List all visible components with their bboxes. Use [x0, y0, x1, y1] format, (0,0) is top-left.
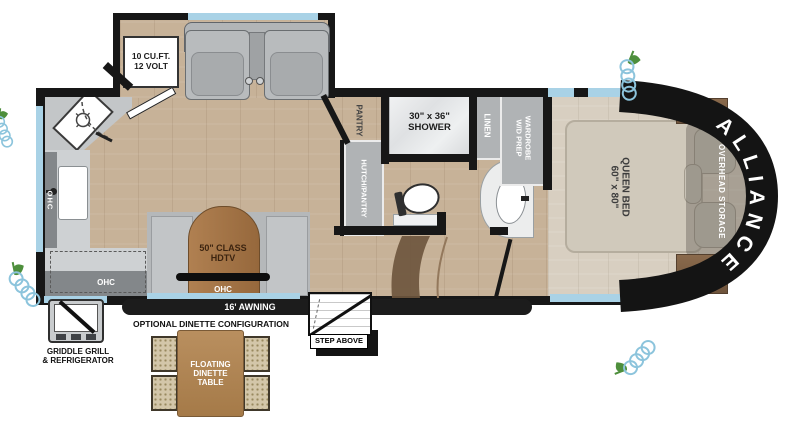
ohc-bottom-label: OHC — [88, 276, 124, 289]
wall-vanity-stub — [490, 227, 508, 235]
window-bedroom-top-1 — [548, 88, 574, 97]
wall-bath-stub — [437, 212, 446, 235]
cupholder-left — [245, 77, 253, 85]
dinette-chair — [151, 375, 178, 411]
dinette-chair — [243, 375, 270, 411]
window-bedroom-bottom — [550, 294, 630, 302]
refrigerator: 10 CU.FT.12 VOLT — [123, 36, 179, 88]
awning-label: 16' AWNING — [190, 301, 310, 314]
step-dashed-mark — [313, 299, 321, 329]
wall-shower-bottom — [381, 154, 477, 162]
dinette-chair — [243, 336, 270, 372]
hutch-pantry-label: HUTCH/PANTRY — [344, 142, 384, 234]
pantry-label: PANTRY — [348, 96, 370, 144]
queen-bed-label: QUEEN BED 60" x 80" — [560, 124, 680, 249]
ohc-left-label: OHC — [38, 165, 62, 235]
burner-icon — [67, 104, 98, 135]
theater-console — [249, 32, 265, 80]
dinette-table: FLOATING DINETTE TABLE — [177, 330, 244, 417]
nightstand-bottom: NIGHTSTAND — [676, 254, 728, 294]
linen-label: LINEN — [472, 92, 502, 158]
tv-side-panel-left — [151, 216, 193, 296]
vanity-faucet — [521, 196, 529, 201]
griddle-knob — [86, 334, 96, 340]
tv-side-panel-right — [266, 216, 308, 296]
shower: 30" x 36"SHOWER — [389, 90, 470, 156]
wall-top-left — [36, 88, 115, 97]
theater-cushion-right — [270, 52, 323, 96]
kitchen-sink — [58, 166, 88, 220]
dinette-chair — [151, 336, 178, 372]
nightstand-top: NIGHTSTAND — [676, 98, 728, 124]
step-above-label: STEP ABOVE — [310, 334, 368, 349]
hookup-coil-bottom — [611, 332, 657, 385]
griddle-label: GRIDDLE GRILL & REFRIGERATOR — [26, 345, 130, 367]
cupholder-right — [256, 77, 264, 85]
griddle-grill — [48, 299, 104, 343]
step-above-icon — [308, 292, 372, 336]
overhead-storage-label: OVERHEAD STORAGE — [700, 126, 742, 256]
griddle-knob — [71, 334, 81, 340]
window-bedroom-top-2 — [588, 88, 622, 97]
griddle-knob — [56, 334, 66, 340]
tv-label: 50" CLASSHDTV — [188, 240, 258, 266]
hookup-coil-left-top — [0, 106, 24, 148]
floorplan-canvas: OHC OHC 10 CU.FT.12 VOLT 50" CLASSHDTV O… — [0, 0, 800, 428]
tv-screen — [176, 273, 270, 281]
wardrobe-label: WARDROBE W/D PREP — [500, 92, 546, 184]
theater-cushion-left — [191, 52, 244, 96]
slideout-window — [188, 13, 318, 20]
